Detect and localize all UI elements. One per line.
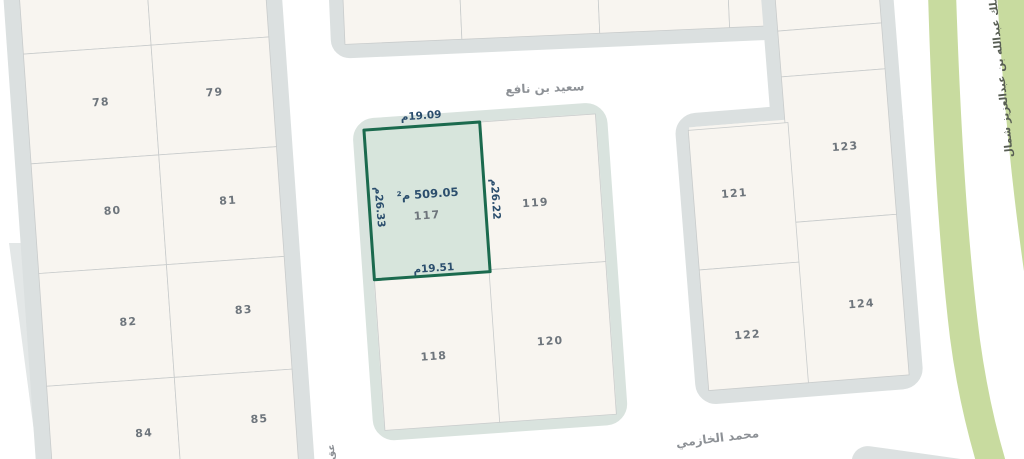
parcel-84-label: 84: [135, 426, 154, 440]
parcel-unnumbered[interactable]: [457, 0, 599, 39]
top-block: [333, 0, 778, 52]
parcel-119-label: 119: [522, 195, 549, 210]
parcel-124-label: 124: [848, 296, 876, 311]
parcel-unnumbered[interactable]: [778, 23, 885, 77]
parcel-79-label: 79: [205, 85, 224, 99]
parcel-unnumbered[interactable]: [595, 0, 729, 33]
parcel-80[interactable]: [31, 155, 166, 274]
parcel-122[interactable]: [699, 262, 808, 390]
street-label-top: سعيد بن نافع: [505, 79, 585, 96]
parcel-122-label: 122: [734, 327, 762, 342]
parcel-84[interactable]: [47, 377, 187, 459]
map-canvas[interactable]: 78 79 80 81 82 83 84 85 121 122 123 124: [0, 0, 1024, 459]
parcel-unnumbered[interactable]: [341, 0, 462, 44]
parcel-85-label: 85: [250, 412, 269, 426]
parcel-82-label: 82: [119, 315, 138, 329]
parcel-123-label: 123: [831, 139, 859, 154]
parcel-78[interactable]: [23, 45, 158, 164]
left-block: 78 79 80 81 82 83 84 85: [7, 0, 313, 459]
street-label-left-partial: عق: [325, 443, 337, 459]
right-block: 121 122 123 124: [670, 0, 917, 398]
parcel-83[interactable]: [166, 256, 292, 377]
parcel-unnumbered[interactable]: [15, 0, 151, 54]
parcel-81-label: 81: [219, 194, 238, 208]
parcel-78-label: 78: [92, 95, 111, 109]
map-viewport[interactable]: 78 79 80 81 82 83 84 85 121 122 123 124: [0, 0, 1024, 459]
parcel-117-label: 117: [413, 208, 440, 223]
parcel-118-label: 118: [420, 349, 447, 364]
center-block: 119 118 120 19.09م 509.05 م² 117 19.51م …: [357, 98, 623, 436]
parcel-121-label: 121: [721, 186, 749, 201]
parcel-80-label: 80: [103, 204, 122, 218]
parcel-85[interactable]: [174, 369, 304, 459]
street-label-bottom: محمد الخازمي: [675, 426, 760, 450]
parcel-120-label: 120: [536, 334, 563, 349]
parcel-82[interactable]: [39, 265, 175, 387]
parcel-83-label: 83: [234, 303, 253, 317]
